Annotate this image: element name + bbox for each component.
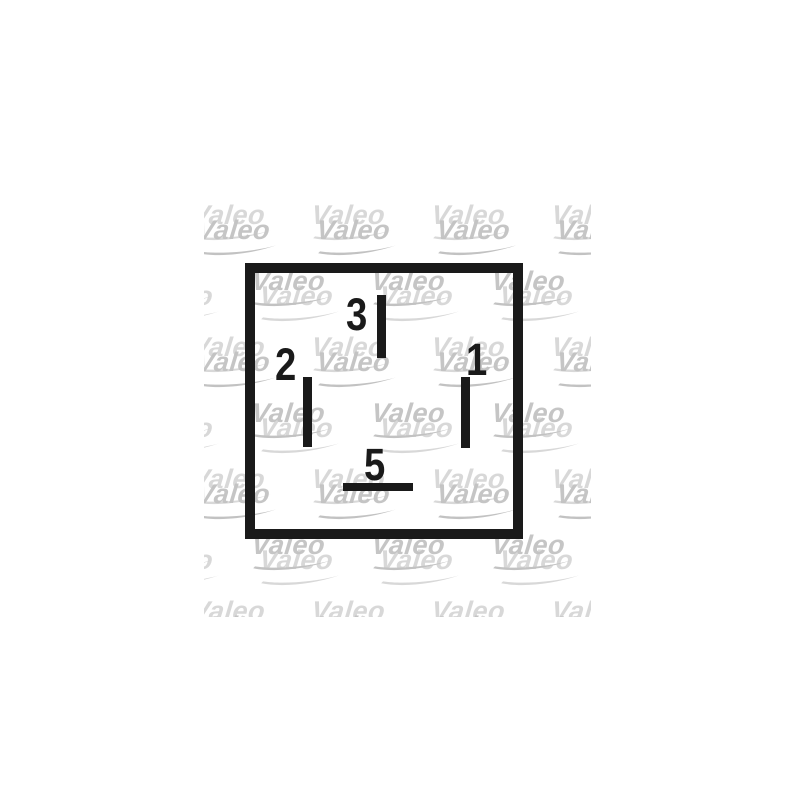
pin-line <box>343 483 413 491</box>
pin-line <box>461 377 470 448</box>
pin-label: 1 <box>466 337 487 382</box>
pin-label: 3 <box>346 292 367 337</box>
pin-label: 2 <box>275 342 296 387</box>
pin-line <box>303 377 312 447</box>
relay-product-image: ValeoValeoValeoValeoValeoValeoValeoValeo… <box>0 0 800 800</box>
relay-pin-diagram: 3215 <box>0 0 800 800</box>
pin-line <box>377 295 386 358</box>
pin-label: 5 <box>364 442 385 487</box>
